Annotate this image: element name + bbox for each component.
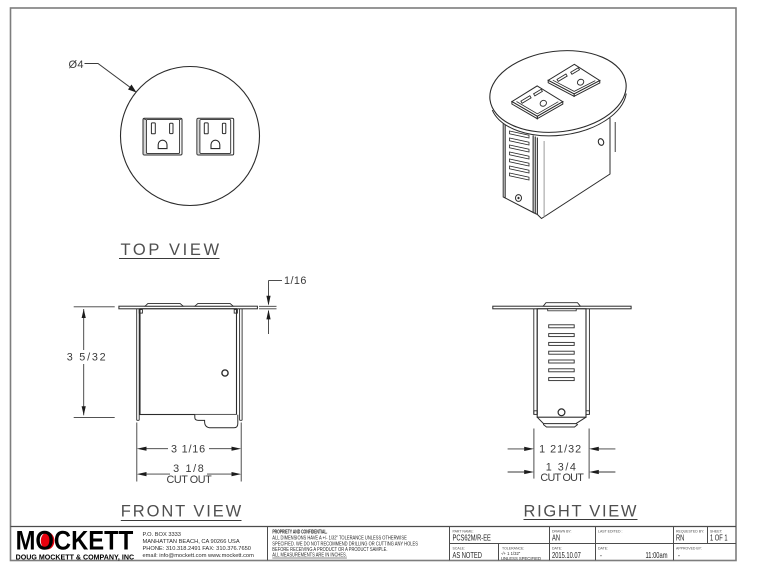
svg-text:SHEET:: SHEET: xyxy=(710,530,723,534)
svg-text:11:00am: 11:00am xyxy=(646,552,668,560)
svg-text:RN: RN xyxy=(676,535,684,543)
svg-text:SCALE:: SCALE: xyxy=(453,546,465,550)
svg-text:MOCKETT: MOCKETT xyxy=(16,526,134,555)
svg-text:DATE:: DATE: xyxy=(552,546,562,550)
svg-text:Ø4: Ø4 xyxy=(69,59,84,71)
svg-text:P.O. BOX 3333: P.O. BOX 3333 xyxy=(143,532,181,538)
svg-text:APPROVED BY:: APPROVED BY: xyxy=(676,546,702,550)
svg-text:SPECIFIED. WE DO NOT RECOMMEND: SPECIFIED. WE DO NOT RECOMMEND DRILLING … xyxy=(272,541,418,548)
svg-text:ALL MEASUREMENTS ARE IN INCHES: ALL MEASUREMENTS ARE IN INCHES. xyxy=(272,552,347,559)
svg-text:DRAWN BY:: DRAWN BY: xyxy=(552,530,572,534)
svg-text:PROPRIETY AND CONFIDENTIAL.: PROPRIETY AND CONFIDENTIAL. xyxy=(272,529,327,535)
svg-text:CUT OUT: CUT OUT xyxy=(540,472,584,484)
svg-text:ALL DIMENSIONS HAVE A +/- 1/32: ALL DIMENSIONS HAVE A +/- 1/32" TOLERANC… xyxy=(272,535,407,542)
svg-text:TOP VIEW: TOP VIEW xyxy=(121,241,220,259)
svg-text:DOUG MOCKETT & COMPANY, INC: DOUG MOCKETT & COMPANY, INC xyxy=(16,553,135,561)
svg-text:PCS62M/R-EE: PCS62M/R-EE xyxy=(452,535,491,543)
svg-text:1/16: 1/16 xyxy=(284,275,306,287)
svg-text:3 1/16: 3 1/16 xyxy=(171,443,205,455)
svg-text:DATE:: DATE: xyxy=(598,546,608,550)
svg-text:1 21/32: 1 21/32 xyxy=(539,443,581,455)
svg-text:PART NAME:: PART NAME: xyxy=(453,530,474,534)
svg-text:2015.10.07: 2015.10.07 xyxy=(552,552,581,560)
svg-text:TOLERANCE:: TOLERANCE: xyxy=(502,546,524,550)
svg-text:AN: AN xyxy=(552,535,560,543)
svg-text:PHONE: 310.318.2491 FAX: 310.: PHONE: 310.318.2491 FAX: 310.376.7650 xyxy=(143,546,251,552)
svg-text:FRONT VIEW: FRONT VIEW xyxy=(121,502,242,520)
svg-text:REQUESTED BY:: REQUESTED BY: xyxy=(676,530,704,534)
svg-text:MANHATTAN BEACH, CA 90266 USA: MANHATTAN BEACH, CA 90266 USA xyxy=(143,539,240,545)
svg-text:email: info@mockett.com ww: email: info@mockett.com www.mockett.com xyxy=(143,553,255,559)
svg-text:AS NOTED: AS NOTED xyxy=(452,552,481,560)
svg-text:LAST EDITED :: LAST EDITED : xyxy=(598,530,622,534)
svg-text:UNLESS SPECIFIED: UNLESS SPECIFIED xyxy=(501,556,541,561)
svg-text:3 5/32: 3 5/32 xyxy=(67,351,106,363)
svg-text:1 OF 1: 1 OF 1 xyxy=(710,535,728,543)
svg-text:CUT OUT: CUT OUT xyxy=(167,474,213,486)
